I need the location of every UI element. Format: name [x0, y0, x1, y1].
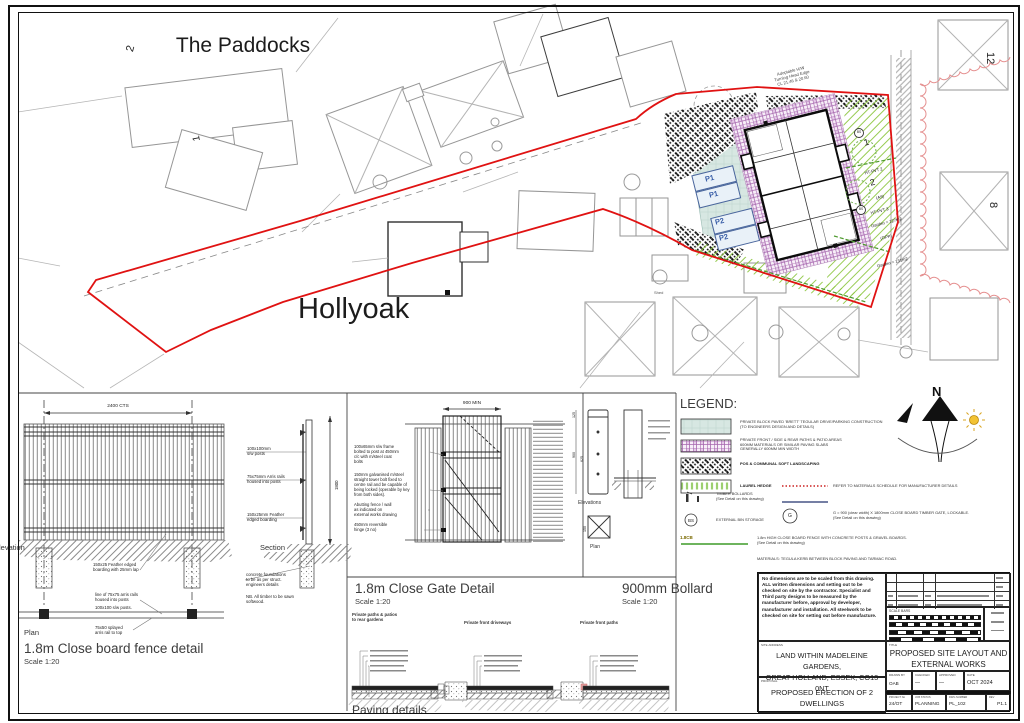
bollard-dim-900: 900	[572, 452, 576, 458]
house-number-12: 12	[983, 52, 996, 64]
checked-label: CHECKED	[915, 673, 930, 677]
gate-label-abutting: Abutting fence / wall as indicated on ex…	[354, 502, 397, 517]
fence-label-posts: 100x100mm s/w posts	[247, 446, 271, 456]
legend-entry-bin-storage: EXTERNAL BIN STORAGE	[716, 518, 764, 523]
scale-bar	[889, 630, 981, 635]
fence-label-splayed: 75x50 splayed arris rail to top	[95, 625, 123, 635]
drawing-title-label: TITLE	[889, 643, 897, 647]
bollard-dim-150: 150	[583, 526, 587, 532]
paving-caption-3: Private front paths	[580, 620, 618, 625]
legend-entry-fence: 1.8m HIGH CLOSE BOARD FENCE WITH CONCRET…	[757, 536, 907, 545]
field-drawn: DRAWN BY OAB	[886, 671, 912, 691]
field-rev: REV P1.1	[986, 694, 1011, 711]
bollard-plan-label: Plan	[590, 544, 600, 550]
bollard-dim-125: 125	[572, 412, 576, 418]
label-hollyoak: Hollyoak	[298, 292, 409, 327]
drawn-value: OAB	[889, 681, 911, 686]
status-value: PLANNING	[915, 702, 945, 707]
field-approved: APPROVED —	[936, 671, 964, 691]
bin-store-2: BS	[857, 208, 865, 212]
rev-label: REV	[989, 696, 994, 699]
sheet-margin-bottom	[0, 713, 1024, 723]
drawn-label: DRAWN BY	[889, 673, 905, 677]
notes-text: No dimensions are to be scaled from this…	[759, 574, 885, 621]
fence-label-feather: 150x25mm Feather edged boarding	[247, 512, 284, 522]
revision-table	[886, 573, 1011, 607]
revision-row	[887, 574, 1010, 583]
field-checked: CHECKED —	[912, 671, 936, 691]
bin-store-1: BS	[855, 131, 863, 135]
legend-entry-bollards: TIMBER BOLLARDS (See Detail on this draw…	[716, 492, 764, 501]
fence-label-arris: 75x75mm Arris rails housed into posts	[247, 474, 285, 484]
legend-title: LEGEND:	[680, 396, 737, 412]
project-label: PROJECT No	[889, 696, 905, 699]
bollard-elevations-label: Elevations	[578, 500, 601, 506]
gate-label-bolt: 150mm galvanised m/steel straight tower …	[354, 472, 410, 497]
drawing-title-cell: TITLE PROPOSED SITE LAYOUT AND EXTERNAL …	[886, 641, 1011, 671]
scale-bars: SCALE BARS	[886, 607, 984, 641]
bollard-scale: Scale 1:20	[622, 597, 657, 606]
fence-detail-scale: Scale 1:20	[24, 657, 59, 666]
gate-detail-scale: Scale 1:20	[355, 597, 390, 606]
bollard-detail-drawing	[576, 410, 670, 538]
legend-entry-hedge: LAUREL HEDGE	[740, 484, 771, 489]
fence-label-line75: line of 75x75 arris rails housed into po…	[95, 592, 138, 602]
bollard-dim-625: 625	[580, 456, 584, 462]
legend-entry-drive: PRIVATE BLOCK PAVED 'BRETT' TEGULAR DRIV…	[740, 420, 882, 429]
fence-label-feather2: 150x25 Feather edged boarding with 25mm …	[93, 562, 139, 572]
legend-entry-soft: POS & COMMUNAL SOFT LANDSCAPING	[740, 462, 819, 467]
gate-detail-title: 1.8m Close Gate Detail	[355, 581, 495, 597]
site-address-label: SITE ADDRESS	[761, 643, 783, 647]
approved-value: —	[939, 680, 963, 686]
proposal-cell: PROPOSAL PROPOSED ERECTION OF 2 DWELLING…	[758, 677, 886, 713]
legend-g-symbol-text: G	[784, 513, 796, 519]
status-label: JOB STATUS	[915, 696, 931, 699]
titleblock-notes: No dimensions are to be scaled from this…	[758, 573, 886, 641]
gate-label-hinge: 450mm reversible hinge (3 no)	[354, 522, 387, 532]
fence-detail-drawing	[18, 400, 352, 630]
field-date: DATE OCT 2024	[964, 671, 1011, 691]
drawing-sheet: The Paddocks Hollyoak 2 1 12 8 Shed Adop…	[0, 0, 1024, 723]
gate-label-frame: 100x65mm s/w frame bolted to post at 450…	[354, 444, 399, 464]
gate-dim-900: 900 MIN	[443, 401, 501, 407]
proposal-label: PROPOSAL	[761, 679, 778, 683]
fence-dim-2400: 2400 CTS	[95, 404, 141, 410]
plot2-variant: (OPP)	[857, 227, 915, 246]
site-address-cell: SITE ADDRESS LAND WITHIN MADELEINE GARDE…	[758, 641, 886, 677]
legend-entry-paths: PRIVATE FRONT / SIDE & REAR PATHS & PATI…	[740, 438, 842, 452]
field-project: PROJECT No 24/OT	[886, 694, 912, 711]
field-status: JOB STATUS PLANNING	[912, 694, 946, 711]
revision-side-column	[984, 607, 1011, 641]
fence-dim-1800: 1800	[334, 480, 339, 490]
title-block: No dimensions are to be scaled from this…	[757, 572, 1010, 712]
legend-bs-symbol-text: BS	[685, 518, 697, 523]
fence-elevation-label: Elevation	[0, 543, 25, 552]
revision-row	[887, 583, 1010, 592]
label-the-paddocks: The Paddocks	[168, 34, 318, 57]
dwg-label: DWG NUMBER	[949, 696, 967, 699]
rev-value: P1.1	[997, 702, 1007, 707]
fence-plan-label: Plan	[24, 628, 39, 637]
scale-bars-label: SCALE BARS	[889, 609, 981, 613]
legend-entry-gate: G = 900 (clear width) X 1800mm CLOSE BOA…	[833, 511, 969, 520]
label-shed: Shed	[654, 291, 663, 296]
paving-caption-1: Private paths & patios to rear gardens	[352, 612, 397, 622]
date-label: DATE	[967, 673, 975, 677]
project-value: 24/OT	[889, 702, 911, 707]
legend-cb-symbol-text: 1.8CB	[680, 535, 693, 540]
proposal: PROPOSED ERECTION OF 2 DWELLINGS	[759, 687, 885, 710]
field-dwg-number: DWG NUMBER PL_102	[946, 694, 986, 711]
paving-caption-2: Private front driveways	[464, 620, 511, 625]
north-arrow	[897, 396, 985, 462]
house-number-8: 8	[986, 202, 999, 208]
plot2-number: 2	[843, 170, 902, 195]
fence-label-posts2: 100x100 s/w posts.	[95, 605, 132, 610]
date-value: OCT 2024	[967, 680, 1010, 686]
fence-label-concrete: concrete foundations to be as per struct…	[246, 572, 286, 587]
scale-bar	[889, 622, 981, 627]
drawing-title: PROPOSED SITE LAYOUT AND EXTERNAL WORKS	[887, 648, 1010, 670]
fence-section-label: Section	[258, 543, 287, 552]
fence-label-nb: NB. All timber to be sawn softwood.	[246, 594, 294, 604]
fence-detail-title: 1.8m Close board fence detail	[24, 641, 203, 657]
scale-bar	[889, 615, 981, 620]
gate-detail-drawing	[405, 407, 565, 542]
legend-entry-materials-schedule: REFER TO MATERIALS SCHEDULE FOR MANUFACT…	[833, 484, 957, 489]
dwg-value: PL_102	[949, 702, 985, 707]
checked-value: —	[915, 680, 935, 686]
revision-row	[887, 592, 1010, 601]
plot2-garden: Garden = 131m2	[864, 253, 922, 272]
approved-label: APPROVED	[939, 673, 956, 677]
north-label: N	[932, 384, 941, 400]
legend-entry-kerb: MATERIALS: TEGULA KERB BETWEEN BLOCK PAV…	[757, 557, 897, 562]
bollard-title: 900mm Bollard	[622, 581, 713, 597]
